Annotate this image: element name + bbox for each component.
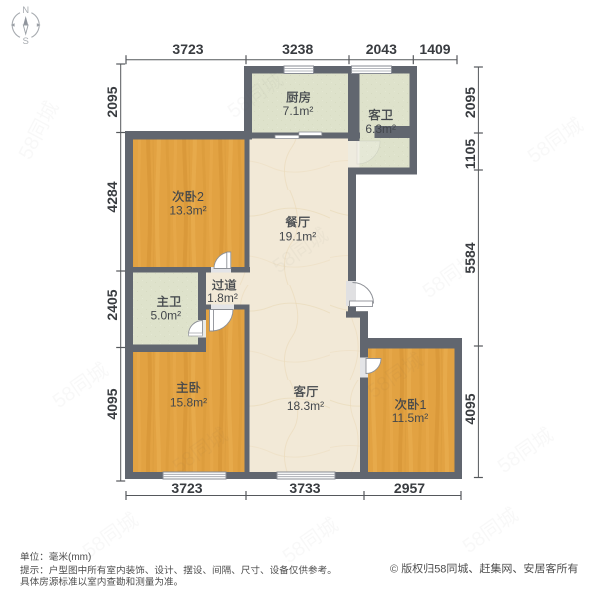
svg-text:58: 58 xyxy=(434,563,446,575)
svg-text:3723: 3723 xyxy=(172,41,203,57)
svg-text:3723: 3723 xyxy=(171,480,202,496)
svg-text:N: N xyxy=(22,5,29,16)
svg-text:6.3m²: 6.3m² xyxy=(365,122,396,136)
svg-text:58: 58 xyxy=(419,272,450,303)
svg-text:58: 58 xyxy=(524,137,555,168)
svg-text:3238: 3238 xyxy=(282,41,313,57)
svg-text:13.3m²: 13.3m² xyxy=(169,203,206,217)
svg-text:2043: 2043 xyxy=(366,41,397,57)
svg-text:11.5m²: 11.5m² xyxy=(392,411,428,425)
svg-text:58: 58 xyxy=(49,382,80,413)
svg-text:2405: 2405 xyxy=(104,289,120,320)
svg-text:58: 58 xyxy=(494,447,525,478)
svg-text:58: 58 xyxy=(279,537,310,568)
svg-text:4095: 4095 xyxy=(462,393,478,424)
svg-text:4284: 4284 xyxy=(104,181,120,212)
svg-text:2095: 2095 xyxy=(104,86,120,117)
svg-text:1105: 1105 xyxy=(462,139,478,170)
svg-text:18.3m²: 18.3m² xyxy=(287,399,324,413)
svg-text:2095: 2095 xyxy=(462,87,478,118)
svg-text:15.8m²: 15.8m² xyxy=(170,395,207,409)
svg-text:1: 1 xyxy=(420,398,427,412)
svg-text:(mm): (mm) xyxy=(68,552,91,563)
svg-text:7.1m²: 7.1m² xyxy=(283,104,314,118)
svg-text:©: © xyxy=(390,563,398,575)
svg-text:4095: 4095 xyxy=(104,388,120,419)
svg-text:2957: 2957 xyxy=(394,480,425,496)
svg-text:S: S xyxy=(23,36,29,47)
svg-text:1409: 1409 xyxy=(419,41,450,57)
svg-text:1.8m²: 1.8m² xyxy=(207,291,238,305)
svg-text:58: 58 xyxy=(459,527,490,558)
svg-text:5.0m²: 5.0m² xyxy=(150,309,181,323)
svg-text:2: 2 xyxy=(197,190,204,204)
svg-text:3733: 3733 xyxy=(289,480,320,496)
